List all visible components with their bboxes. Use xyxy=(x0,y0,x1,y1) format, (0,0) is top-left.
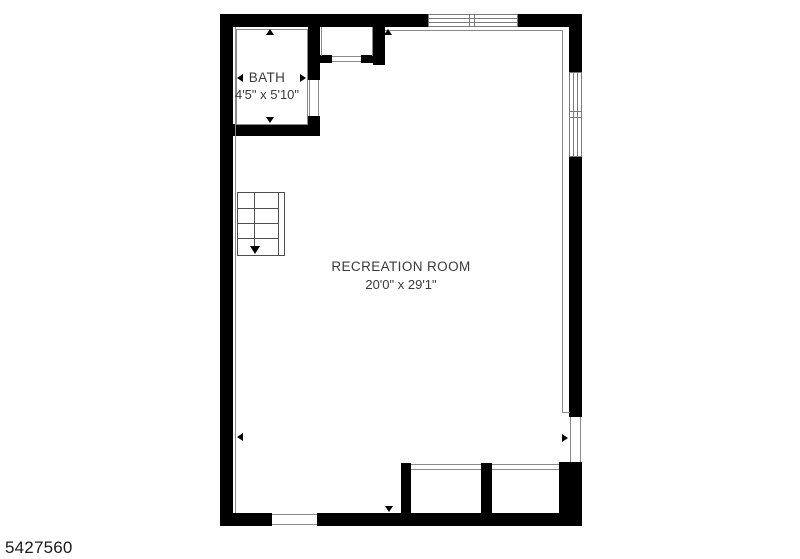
inner-outline-top xyxy=(385,30,562,31)
rec-room-dimension-arrow-up-icon xyxy=(384,29,392,35)
alcove-opening-line-outer xyxy=(332,56,361,57)
stair-side-line xyxy=(237,192,238,256)
stair-tread-line xyxy=(237,238,278,239)
inner-outline-right-jog xyxy=(562,412,570,413)
stair-tread-line xyxy=(237,208,278,209)
bottom-door-line-top xyxy=(272,514,317,515)
bay-wall-stub-left xyxy=(401,463,411,513)
window-divider xyxy=(570,117,581,118)
window-divider xyxy=(474,15,475,26)
bay-left-header-line-bottom xyxy=(411,469,481,470)
right-opening-line-outer xyxy=(580,417,581,462)
recreation-room-label: RECREATION ROOM xyxy=(331,259,470,274)
rec-room-dimension-arrow-right-icon xyxy=(562,434,568,442)
bath-right-wall-upper xyxy=(308,27,320,80)
wall-left xyxy=(220,14,233,526)
alcove-opening-jamb-right xyxy=(361,55,373,63)
wall-bottom-right-segment xyxy=(317,513,582,526)
window-glass-line xyxy=(573,73,574,156)
window-divider xyxy=(469,15,470,26)
window-glass-line xyxy=(429,18,517,19)
bath-dimension-arrow-down-icon xyxy=(266,117,274,123)
right-opening-line-inner xyxy=(570,417,571,462)
window-glass-line xyxy=(429,22,517,23)
stair-handrail-line xyxy=(284,192,285,256)
alcove-opening-line-inner xyxy=(332,61,361,62)
stair-direction-line xyxy=(254,192,255,247)
window-divider xyxy=(570,111,581,112)
bay-wall-stub-right xyxy=(559,462,569,513)
alcove-outline-left xyxy=(321,27,322,56)
bay-wall-stub-middle xyxy=(481,463,492,513)
wall-top-left-segment xyxy=(220,14,428,27)
recreation-room-dimensions: 20'0" x 29'1" xyxy=(365,277,436,292)
bay-right-header-line-top xyxy=(492,464,559,465)
wall-right-middle-segment xyxy=(569,157,582,417)
stair-side-line xyxy=(278,192,279,256)
bath-room-dimensions: 4'5" x 5'10" xyxy=(235,87,299,102)
bay-right-header-line-bottom xyxy=(492,469,559,470)
stair-direction-arrow-icon xyxy=(250,246,260,254)
bay-left-header-line-top xyxy=(411,464,481,465)
bath-dimension-arrow-up-icon xyxy=(266,29,274,35)
rec-room-dimension-arrow-left-icon xyxy=(237,433,243,441)
bath-door-line-left xyxy=(309,80,310,116)
stair-tread-line xyxy=(237,255,285,256)
rec-room-dimension-arrow-down-icon xyxy=(385,506,393,512)
window-top xyxy=(428,14,518,27)
stair-tread-line xyxy=(237,192,285,193)
alcove-outline-right xyxy=(372,27,373,56)
bath-dimension-arrow-left-icon xyxy=(237,74,243,82)
listing-number: 5427560 xyxy=(5,538,73,558)
window-glass-line xyxy=(577,73,578,156)
bath-room-label: BATH xyxy=(249,70,286,85)
bath-dimension-arrow-right-icon xyxy=(300,74,306,82)
wall-right-upper-segment xyxy=(569,14,582,72)
window-right xyxy=(569,72,582,157)
alcove-opening-jamb-left xyxy=(320,55,332,63)
stair-tread-line xyxy=(237,223,278,224)
floor-plan: BATH 4'5" x 5'10" RECREATION ROOM 20'0" … xyxy=(0,0,800,559)
bath-door-line-right xyxy=(318,80,319,116)
bottom-door-line-bottom xyxy=(272,524,317,525)
inner-outline-right xyxy=(562,30,563,412)
wall-bottom-left-segment xyxy=(220,513,272,526)
